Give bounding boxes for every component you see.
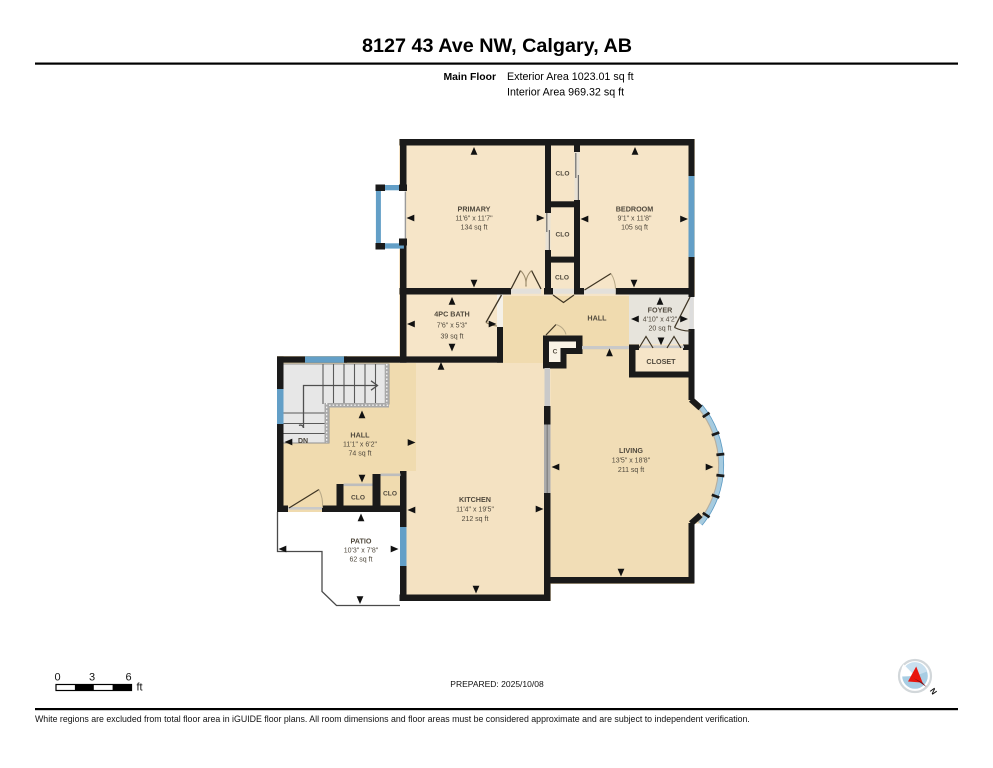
svg-text:6: 6 [125,672,131,684]
svg-text:PRIMARY: PRIMARY [458,205,491,214]
svg-text:3: 3 [89,672,95,684]
svg-text:DN: DN [298,438,308,445]
svg-text:20 sq ft: 20 sq ft [649,326,672,333]
svg-text:BEDROOM: BEDROOM [616,205,654,214]
svg-text:212 sq ft: 212 sq ft [462,516,489,523]
svg-text:PATIO: PATIO [351,537,372,546]
svg-text:9'1" x 11'8": 9'1" x 11'8" [618,216,652,223]
svg-text:CLO: CLO [383,491,397,498]
svg-text:CLO: CLO [555,275,569,282]
svg-text:KITCHEN: KITCHEN [459,495,491,504]
svg-text:0: 0 [54,672,60,684]
svg-text:CLO: CLO [556,232,570,239]
svg-text:4'10" x 4'2": 4'10" x 4'2" [643,317,678,324]
svg-text:10'3" x 7'8": 10'3" x 7'8" [344,548,379,555]
svg-text:CLO: CLO [556,171,570,178]
svg-text:11'1" x 6'2": 11'1" x 6'2" [343,442,377,449]
svg-text:CLO: CLO [351,495,365,502]
svg-text:LIVING: LIVING [619,446,643,455]
svg-text:7'6" x 5'3": 7'6" x 5'3" [437,323,468,330]
svg-text:C: C [553,349,558,356]
svg-text:11'6" x 11'7": 11'6" x 11'7" [455,216,493,223]
svg-text:Interior Area 969.32 sq ft: Interior Area 969.32 sq ft [507,87,624,99]
svg-text:39 sq ft: 39 sq ft [441,334,464,341]
svg-text:74 sq ft: 74 sq ft [349,451,372,458]
svg-text:4PC BATH: 4PC BATH [434,310,469,319]
svg-text:11'4" x 19'5": 11'4" x 19'5" [456,507,494,514]
svg-text:13'5" x 18'8": 13'5" x 18'8" [612,458,651,465]
svg-text:211 sq ft: 211 sq ft [618,467,644,474]
svg-text:PREPARED: 2025/10/08: PREPARED: 2025/10/08 [450,679,544,689]
svg-text:White regions are excluded fro: White regions are excluded from total fl… [35,714,750,724]
svg-text:62 sq ft: 62 sq ft [350,557,373,564]
svg-text:HALL: HALL [587,314,607,323]
svg-text:Exterior Area 1023.01 sq ft: Exterior Area 1023.01 sq ft [507,71,634,83]
svg-text:8127 43 Ave NW, Calgary, AB: 8127 43 Ave NW, Calgary, AB [362,35,632,57]
svg-text:FOYER: FOYER [648,306,674,315]
svg-text:105 sq ft: 105 sq ft [621,225,648,232]
svg-text:CLOSET: CLOSET [646,357,676,366]
svg-text:Main Floor: Main Floor [443,72,496,83]
svg-text:134 sq ft: 134 sq ft [461,225,488,232]
svg-text:HALL: HALL [350,431,370,440]
svg-text:ft: ft [137,682,143,694]
